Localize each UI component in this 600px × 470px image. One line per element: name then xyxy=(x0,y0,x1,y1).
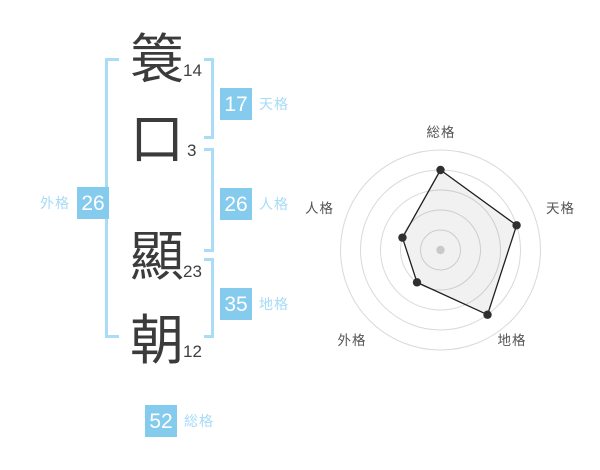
radar-polygon xyxy=(402,170,516,315)
jinkaku-score: 26 人格 xyxy=(220,188,289,220)
surname-char-1-strokes: 14 xyxy=(183,62,202,79)
radar-axis-label: 地格 xyxy=(498,333,527,348)
fortune-radar-chart: 総格天格地格外格人格 xyxy=(300,110,585,395)
gaikaku-score: 外格 26 xyxy=(40,187,109,219)
gaikaku-value-badge: 26 xyxy=(77,187,109,219)
radar-point xyxy=(398,233,406,241)
jinkaku-value-badge: 26 xyxy=(220,188,252,220)
tenkaku-value-badge: 17 xyxy=(220,88,252,120)
radar-point xyxy=(413,278,421,286)
chikaku-value-badge: 35 xyxy=(220,288,252,320)
jinkaku-label: 人格 xyxy=(259,194,289,214)
gaikaku-label: 外格 xyxy=(40,193,70,213)
chikaku-score: 35 地格 xyxy=(220,288,289,320)
radar-center-dot xyxy=(436,246,444,254)
soukaku-label: 総格 xyxy=(184,411,214,431)
tenkaku-score: 17 天格 xyxy=(220,88,289,120)
surname-char-2-strokes: 3 xyxy=(187,142,196,159)
tenkaku-bracket xyxy=(204,58,214,139)
soukaku-value-badge: 52 xyxy=(145,405,177,437)
radar-axis-label: 総格 xyxy=(427,125,456,140)
soukaku-score: 52 総格 xyxy=(145,405,214,437)
radar-axis-label: 外格 xyxy=(338,333,367,348)
chikaku-label: 地格 xyxy=(259,294,289,314)
seimei-handan-panel: 簑 口 顯 朝 14 3 23 12 外格 26 17 天格 26 人格 35 … xyxy=(0,0,600,470)
jinkaku-bracket xyxy=(204,148,214,252)
tenkaku-label: 天格 xyxy=(259,94,289,114)
radar-point xyxy=(483,311,491,319)
radar-axis-label: 人格 xyxy=(305,201,334,216)
radar-point xyxy=(436,166,444,174)
radar-axis-label: 天格 xyxy=(546,201,575,216)
given-char-1-strokes: 23 xyxy=(183,263,202,280)
radar-point xyxy=(512,221,520,229)
chikaku-bracket xyxy=(204,258,214,338)
given-char-2-strokes: 12 xyxy=(183,343,202,360)
